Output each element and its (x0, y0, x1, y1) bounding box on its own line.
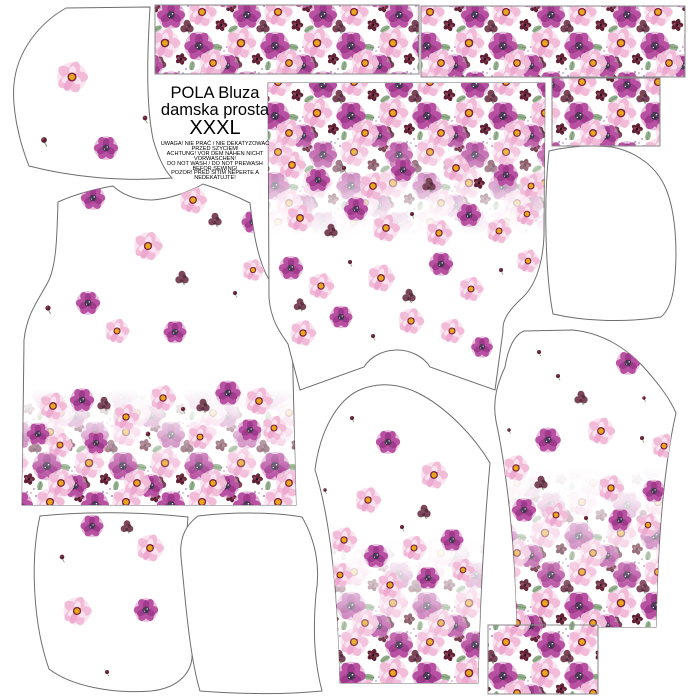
top-border-strip-left (155, 5, 419, 74)
piece-hood-piece-bottom-left-b (181, 513, 322, 694)
fabric-pattern-sheet: POLA Bluza damska prosta XXXL UWAGA! NIE… (0, 0, 700, 700)
panel-label-block: POLA Bluza damska prosta XXXL UWAGA! NIE… (148, 85, 282, 181)
pattern-pieces-canvas (0, 0, 700, 700)
care-warning-line: NEDEKATUJTE! (148, 176, 282, 181)
piece-hood-side-right (546, 146, 676, 321)
piece-hood-piece-bottom-left-a (34, 513, 192, 692)
bud-flower (513, 321, 517, 328)
cuff-rect-top-right (552, 78, 660, 146)
care-warnings: UWAGA! NIE PRAĆ / NIE DEKATYZOWAĆPRZED S… (148, 142, 282, 181)
cuff-rect-bottom-right (488, 625, 598, 694)
top-border-strip-right (421, 6, 685, 77)
product-size: XXXL (148, 119, 282, 138)
product-title-line1: POLA Bluza (148, 85, 282, 102)
